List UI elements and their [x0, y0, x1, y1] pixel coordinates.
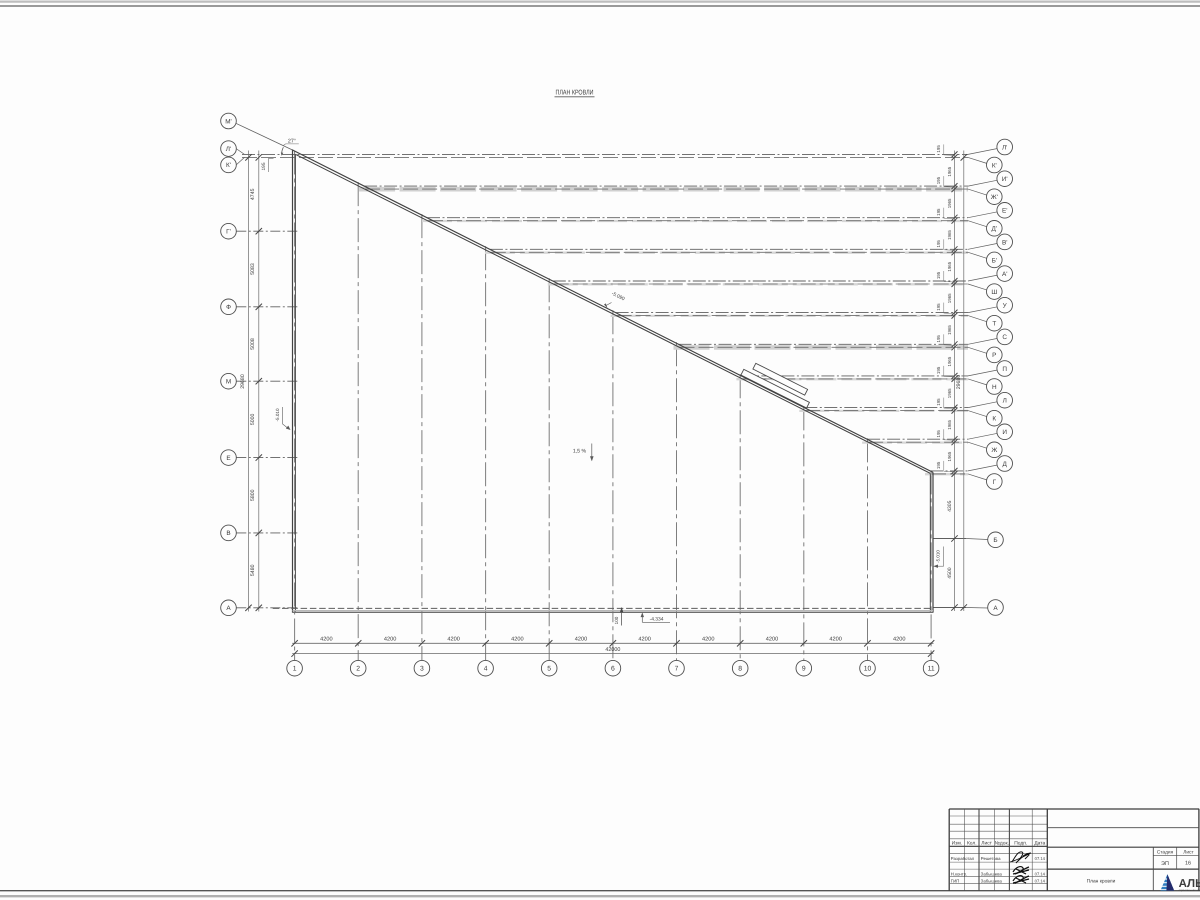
svg-text:К: К — [992, 416, 996, 423]
svg-text:Р: Р — [992, 352, 996, 359]
svg-text:Ф: Ф — [226, 304, 231, 311]
svg-text:195: 195 — [936, 240, 941, 248]
svg-text:Решетова: Решетова — [981, 856, 1001, 861]
svg-text:5000: 5000 — [250, 414, 256, 426]
svg-text:100: 100 — [614, 616, 619, 624]
svg-text:ПЛАН КРОВЛИ: ПЛАН КРОВЛИ — [556, 90, 594, 97]
svg-text:8: 8 — [738, 666, 742, 673]
svg-text:К': К' — [992, 162, 997, 169]
svg-text:Г': Г' — [226, 229, 231, 236]
svg-text:4200: 4200 — [893, 637, 906, 643]
svg-text:4200: 4200 — [511, 637, 524, 643]
svg-text:-4.334: -4.334 — [650, 617, 664, 623]
svg-text:Ж': Ж' — [991, 194, 998, 201]
svg-text:9: 9 — [802, 666, 806, 673]
svg-text:1965: 1965 — [947, 356, 952, 366]
svg-text:строительная компания: строительная компания — [1179, 889, 1200, 892]
svg-text:29680: 29680 — [956, 375, 962, 390]
svg-text:1965: 1965 — [947, 198, 952, 208]
svg-text:Л: Л — [1003, 398, 1007, 405]
svg-text:29680: 29680 — [240, 374, 246, 389]
svg-text:Л': Л' — [1002, 144, 1007, 151]
svg-text:Забышева: Забышева — [981, 879, 1003, 884]
svg-text:3: 3 — [420, 666, 424, 673]
svg-text:195: 195 — [936, 208, 941, 216]
svg-text:195: 195 — [261, 162, 267, 170]
svg-text:1,5 %: 1,5 % — [573, 448, 587, 454]
svg-text:4200: 4200 — [384, 637, 397, 643]
svg-text:И: И — [1002, 429, 1007, 436]
svg-text:К': К' — [226, 162, 231, 169]
svg-text:Подп.: Подп. — [1014, 841, 1027, 847]
svg-text:1965: 1965 — [947, 451, 952, 461]
svg-text:195: 195 — [936, 461, 941, 469]
svg-text:Е': Е' — [1002, 208, 1007, 215]
svg-text:План кровли: План кровли — [1087, 879, 1116, 885]
svg-text:Г: Г — [993, 479, 997, 486]
svg-text:1965: 1965 — [947, 419, 952, 429]
svg-text:Ж: Ж — [991, 447, 997, 454]
svg-text:42000: 42000 — [605, 647, 620, 653]
svg-text:А: А — [993, 605, 998, 612]
svg-text:4200: 4200 — [829, 637, 842, 643]
svg-text:07.14: 07.14 — [1035, 856, 1046, 861]
svg-text:4200: 4200 — [575, 637, 588, 643]
svg-text:Н: Н — [992, 384, 997, 391]
svg-text:1: 1 — [293, 666, 297, 673]
svg-text:ГИП: ГИП — [951, 879, 960, 884]
svg-text:В: В — [226, 530, 230, 537]
svg-text:Стадия: Стадия — [1157, 850, 1174, 856]
svg-text:07.14: 07.14 — [1035, 879, 1046, 884]
svg-text:Кол.: Кол. — [967, 841, 977, 847]
svg-text:Н.контр.: Н.контр. — [951, 872, 968, 877]
svg-text:Т: Т — [992, 321, 996, 328]
svg-text:1965: 1965 — [947, 388, 952, 398]
svg-text:М': М' — [225, 118, 232, 125]
svg-text:4200: 4200 — [320, 637, 333, 643]
svg-text:Лист: Лист — [981, 841, 992, 847]
svg-text:Б: Б — [993, 537, 997, 544]
svg-text:07.14: 07.14 — [1035, 872, 1046, 877]
svg-text:5800: 5800 — [250, 489, 256, 501]
svg-text:Д': Д' — [992, 226, 998, 233]
svg-text:С: С — [1002, 334, 1007, 341]
svg-text:195: 195 — [936, 145, 941, 153]
svg-text:1965: 1965 — [947, 166, 952, 176]
svg-text:5480: 5480 — [250, 564, 256, 576]
svg-text:7: 7 — [675, 666, 679, 673]
svg-text:Б': Б' — [992, 257, 997, 264]
svg-text:5008: 5008 — [250, 338, 256, 350]
svg-text:4745: 4745 — [250, 188, 256, 200]
svg-text:6: 6 — [611, 666, 615, 673]
svg-text:А': А' — [1002, 271, 1007, 278]
svg-text:4200: 4200 — [638, 637, 651, 643]
svg-text:№док.: №док. — [995, 841, 1009, 847]
svg-text:Дата: Дата — [1034, 841, 1045, 847]
svg-text:-5.010: -5.010 — [275, 408, 280, 421]
svg-text:195: 195 — [936, 430, 941, 438]
svg-text:1965: 1965 — [947, 325, 952, 335]
svg-text:В': В' — [1002, 239, 1007, 246]
svg-text:Изм.: Изм. — [952, 841, 962, 847]
svg-text:10: 10 — [864, 666, 872, 673]
svg-text:4305: 4305 — [947, 500, 953, 511]
svg-text:П: П — [1002, 366, 1007, 373]
svg-text:195: 195 — [936, 398, 941, 406]
svg-text:Л': Л' — [226, 146, 231, 153]
svg-text:4200: 4200 — [702, 637, 715, 643]
svg-text:А: А — [226, 605, 231, 612]
svg-text:4200: 4200 — [447, 637, 460, 643]
svg-text:5083: 5083 — [250, 263, 256, 275]
svg-text:Разработал: Разработал — [951, 856, 975, 861]
svg-text:Ш: Ш — [991, 289, 997, 296]
svg-text:195: 195 — [936, 366, 941, 374]
svg-text:Д: Д — [1003, 461, 1008, 468]
svg-text:2: 2 — [356, 666, 360, 673]
svg-text:195: 195 — [936, 176, 941, 184]
svg-text:И': И' — [1002, 176, 1008, 183]
svg-text:4: 4 — [484, 666, 488, 673]
svg-text:4200: 4200 — [766, 637, 779, 643]
svg-text:1965: 1965 — [947, 261, 952, 271]
svg-text:195: 195 — [936, 271, 941, 279]
svg-text:-5.010: -5.010 — [935, 550, 940, 563]
svg-text:Забышева: Забышева — [981, 872, 1003, 877]
svg-text:1965: 1965 — [947, 230, 952, 240]
svg-text:ЭП: ЭП — [1161, 861, 1169, 867]
svg-text:М: М — [226, 379, 231, 386]
svg-text:Е: Е — [226, 455, 230, 462]
svg-text:5: 5 — [547, 666, 551, 673]
svg-text:195: 195 — [936, 335, 941, 343]
svg-text:11: 11 — [928, 666, 935, 673]
svg-text:4500: 4500 — [947, 567, 953, 578]
svg-text:16: 16 — [1185, 861, 1191, 867]
svg-text:1965: 1965 — [947, 293, 952, 303]
svg-text:Лист: Лист — [1183, 850, 1194, 856]
svg-text:195: 195 — [936, 303, 941, 311]
